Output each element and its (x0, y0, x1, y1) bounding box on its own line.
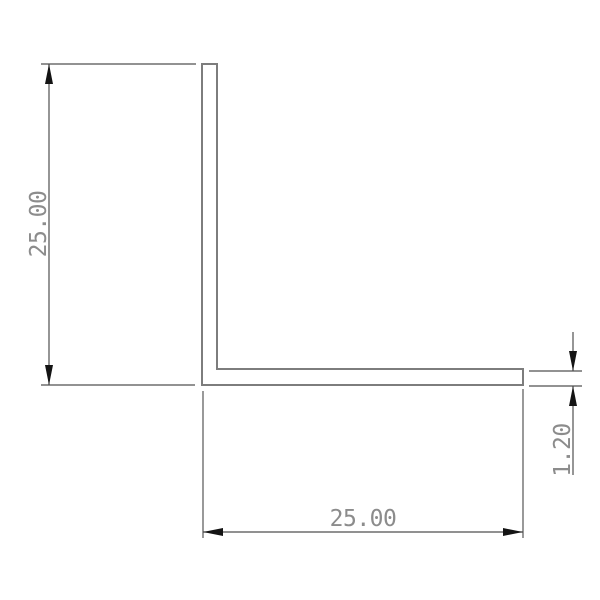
thickness-arrow-up-icon (569, 386, 577, 406)
dimension-labels-group: 25.00 25.00 1.20 (26, 191, 576, 532)
technical-drawing-svg: 25.00 25.00 1.20 (0, 0, 600, 600)
dimension-lines-group (49, 64, 573, 532)
arrowheads-group (45, 64, 577, 536)
width-arrow-left-icon (203, 528, 223, 536)
width-dimension-label: 25.00 (330, 506, 397, 532)
thickness-arrow-down-icon (569, 351, 577, 371)
drawing-canvas: 25.00 25.00 1.20 (0, 0, 600, 600)
width-arrow-right-icon (503, 528, 523, 536)
profile-outline-group (202, 64, 523, 385)
thickness-dimension-label: 1.20 (550, 423, 576, 476)
l-angle-profile-outline (202, 64, 523, 385)
height-arrow-up-icon (45, 64, 53, 84)
height-dimension-label: 25.00 (26, 191, 52, 258)
height-arrow-down-icon (45, 365, 53, 385)
extension-lines-group (41, 64, 582, 538)
